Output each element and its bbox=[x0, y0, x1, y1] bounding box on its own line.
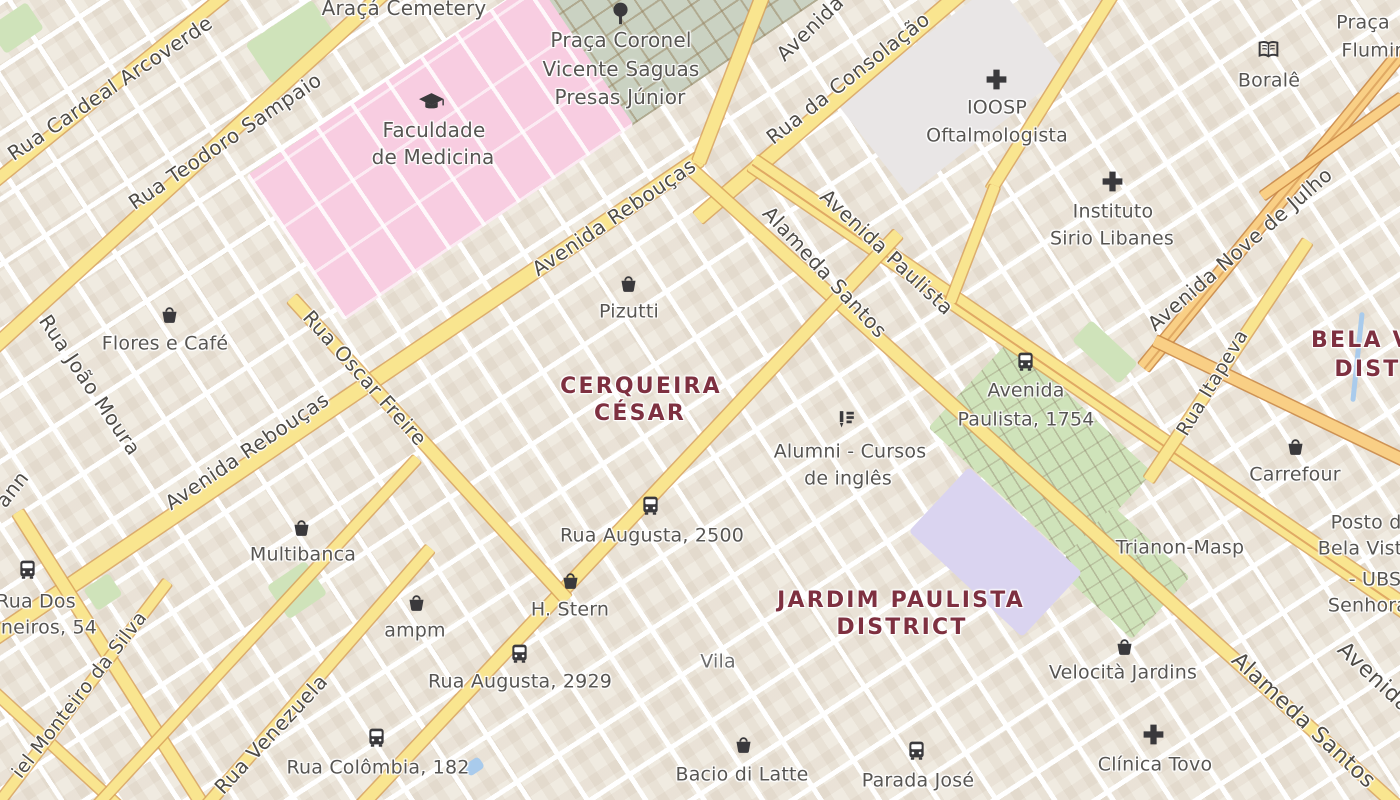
posto-bela-vista-ubs-label: - UBS bbox=[1349, 571, 1400, 590]
posto-bela-vista-ubs-label: Bela Vista bbox=[1318, 540, 1400, 559]
trianon-masp-label: Trianon-Masp bbox=[1116, 539, 1245, 558]
university-icon bbox=[418, 89, 445, 116]
ioosp-oftalmologista-label: IOOSP bbox=[967, 99, 1027, 118]
praca-flumine-label: Flumine bbox=[1341, 42, 1400, 61]
supermarket-icon bbox=[291, 517, 312, 538]
stop-rua-dos-pinheiros-54-label: Rua Dos bbox=[0, 593, 76, 612]
bacio-di-latte-label: Bacio di Latte bbox=[675, 766, 808, 785]
street-rua-itapeva: Rua Itapeva bbox=[1174, 327, 1252, 440]
stop-rua-augusta-2500-label: Rua Augusta, 2500 bbox=[560, 527, 744, 546]
clinica-tovo-label: Clínica Tovo bbox=[1098, 756, 1213, 775]
stop-rua-colombia-182-label: Rua Colômbia, 182 bbox=[286, 759, 469, 778]
language-school-icon bbox=[835, 408, 858, 431]
bus-stop-icon bbox=[906, 740, 927, 761]
district-bela-vista: BELA VISTA bbox=[1311, 330, 1400, 352]
clinic-icon bbox=[1100, 169, 1125, 194]
supermarket-icon bbox=[406, 592, 427, 613]
book-icon bbox=[1256, 37, 1281, 62]
h-stern-label: H. Stern bbox=[531, 601, 609, 620]
supermarket-icon bbox=[560, 570, 581, 591]
bus-stop-icon bbox=[17, 559, 38, 580]
bus-stop-icon bbox=[1015, 351, 1036, 372]
praca-flumine-label: Praça bbox=[1336, 14, 1390, 33]
district-cerqueira-cesar: CERQUEIRA bbox=[560, 376, 722, 398]
supermarket-icon bbox=[159, 304, 180, 325]
stop-rua-dos-pinheiros-54-label: neiros, 54 bbox=[1, 619, 97, 638]
alumni-cursos-label: Alumni - Cursos bbox=[774, 443, 927, 462]
street-rua-da-consolacao: Rua da Consolação bbox=[763, 8, 933, 147]
street-ann-partial: ann bbox=[0, 467, 32, 510]
labels-layer: CERQUEIRACÉSARJARDIM PAULISTADISTRICTBEL… bbox=[0, 0, 1400, 800]
araca-cemetery-label: Araçá Cemetery bbox=[322, 0, 487, 18]
supermarket-icon bbox=[1285, 436, 1306, 457]
instituto-sirio-libanes-label: Instituto bbox=[1073, 203, 1154, 222]
faculdade-de-medicina-label: de Medicina bbox=[372, 147, 495, 167]
supermarket-icon bbox=[733, 734, 754, 755]
stop-parada-jose-label: Parada José bbox=[862, 772, 974, 791]
multibanca-label: Multibanca bbox=[250, 546, 356, 565]
street-avenida-partial-se: Avenida bbox=[1333, 639, 1400, 718]
ioosp-oftalmologista-label: Oftalmologista bbox=[926, 127, 1068, 146]
bus-stop-icon bbox=[366, 727, 387, 748]
district-jardim-paulista: JARDIM PAULISTA bbox=[777, 590, 1025, 612]
pizutti-label: Pizutti bbox=[599, 303, 659, 322]
faculdade-de-medicina-label: Faculdade bbox=[383, 120, 486, 140]
street-rua-teodoro-sampaio: Rua Teodoro Sampaio bbox=[125, 69, 325, 213]
carrefour-label: Carrefour bbox=[1249, 466, 1340, 485]
stop-rua-augusta-2929-label: Rua Augusta, 2929 bbox=[428, 673, 612, 692]
district-jardim-paulista: DISTRICT bbox=[836, 617, 967, 639]
district-cerqueira-cesar: CÉSAR bbox=[594, 403, 686, 425]
clinic-icon bbox=[1141, 722, 1166, 747]
supermarket-icon bbox=[1114, 636, 1135, 657]
stop-avenida-paulista-1754-label: Avenida bbox=[987, 382, 1064, 401]
tree-icon bbox=[607, 0, 634, 27]
flores-e-cafe-label: Flores e Café bbox=[102, 335, 228, 354]
praca-coronel-label: Vicente Saguas bbox=[542, 59, 699, 79]
bus-stop-icon bbox=[509, 643, 530, 664]
posto-bela-vista-ubs-label: Senhora bbox=[1328, 597, 1400, 616]
street-avenida-reboucas-w: Avenida Rebouças bbox=[162, 389, 333, 513]
borale-label: Boralê bbox=[1238, 72, 1300, 91]
ampm-label: ampm bbox=[384, 622, 446, 641]
posto-bela-vista-ubs-label: Posto de bbox=[1331, 514, 1400, 533]
praca-coronel-label: Praça Coronel bbox=[550, 30, 691, 50]
bus-stop-icon bbox=[640, 495, 661, 516]
district-bela-vista: DISTRICT bbox=[1334, 359, 1400, 381]
street-rua-oscar-freire: Rua Oscar Freire bbox=[299, 307, 430, 449]
vila-label: Vila bbox=[700, 653, 736, 672]
street-avenida-partial-top: Avenida bbox=[773, 0, 847, 64]
clinic-icon bbox=[984, 67, 1009, 92]
instituto-sirio-libanes-label: Sirio Libanes bbox=[1050, 230, 1174, 249]
supermarket-icon bbox=[618, 273, 639, 294]
alumni-cursos-label: de inglês bbox=[804, 470, 892, 489]
street-rua-cardeal-arcoverde: Rua Cardeal Arcoverde bbox=[4, 12, 216, 164]
street-avenida-reboucas-n: Avenida Rebouças bbox=[529, 155, 700, 279]
praca-coronel-label: Presas Júnior bbox=[554, 87, 685, 107]
map-canvas[interactable]: CERQUEIRACÉSARJARDIM PAULISTADISTRICTBEL… bbox=[0, 0, 1400, 800]
velocita-jardins-label: Velocità Jardins bbox=[1049, 664, 1197, 683]
stop-avenida-paulista-1754-label: Paulista, 1754 bbox=[957, 411, 1094, 430]
